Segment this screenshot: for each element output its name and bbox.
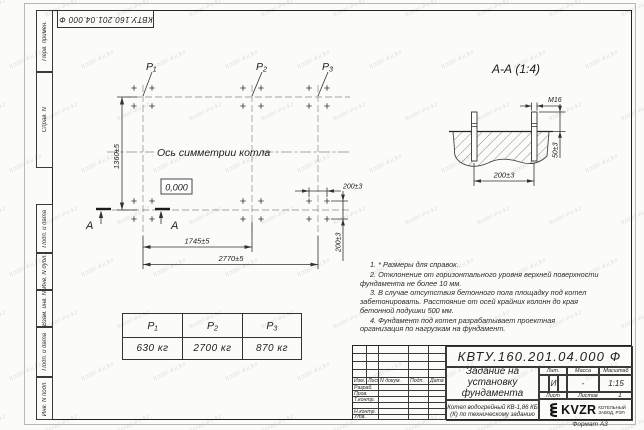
note-2: 2. Отклонение от горизонтального уровня …: [360, 271, 600, 289]
section-letter-right: А: [170, 220, 178, 232]
bolt-thread-marks: [472, 124, 538, 127]
elevation-mark-value: 0,000: [165, 183, 188, 193]
loads-header-p2: P₂: [183, 314, 243, 338]
dimension-200-vertical: 200±3: [331, 191, 348, 261]
loads-table: P₁ P₂ P₃ 630 кг 2700 кг 870 кг: [122, 313, 302, 360]
change-row-cell: [379, 346, 409, 354]
bolt-plus-mark: [324, 103, 329, 108]
thread-label: М16: [548, 97, 562, 104]
bolt-plus-mark: [324, 198, 329, 203]
bolt-plus-mark: [131, 103, 136, 108]
format-label: Формат А3: [548, 421, 632, 428]
title-block-main: КВТУ.160.201.04.000 Ф Задание на установ…: [446, 346, 633, 421]
bolt-plus-mark: [306, 85, 311, 90]
change-row-cell: [367, 362, 379, 370]
bolt-plus-mark: [306, 103, 311, 108]
bolt-plus-mark: [240, 85, 245, 90]
leader-p2: [252, 72, 262, 96]
change-row-cell: [409, 354, 429, 362]
note-3: 3. В случае отсутствия бетонного пола пл…: [360, 289, 600, 315]
change-row-cell: [367, 346, 379, 354]
bolt-plus-mark: [131, 85, 136, 90]
change-row-cell: [353, 346, 367, 354]
dimension-200-section-text: 200±3: [493, 171, 516, 180]
load-label-p2: P₂: [256, 61, 267, 73]
title-block: Изм.ЛистN докум.Подп.ДатаРазраб.Пров.Т.к…: [352, 345, 632, 420]
bolt-plus-mark: [240, 103, 245, 108]
load-label-p1: P₁: [146, 61, 157, 73]
bolt-plus-mark: [258, 216, 263, 221]
bolt-plus-mark: [324, 85, 329, 90]
anchor-bolt-right: [532, 112, 538, 161]
change-row-cell: [353, 370, 367, 378]
change-row-cell: [409, 346, 429, 354]
leader-p3: [318, 72, 328, 96]
plan-view: P₁ P₂ P₃ Ось симметрии котла 0,000 1360±…: [85, 61, 363, 269]
bolt-plus-mark: [258, 85, 263, 90]
lit-cell-1: [539, 375, 549, 392]
change-row-cell: [367, 354, 379, 362]
bolt-plus-mark: [258, 198, 263, 203]
lit-cell-3: [558, 375, 567, 392]
dimension-m16: М16: [520, 97, 562, 111]
change-row-cell: [367, 370, 379, 378]
change-row-cell: [409, 370, 429, 378]
note-4: 4. Фундамент под котел разрабатывает про…: [360, 317, 600, 335]
change-row-cell: [353, 362, 367, 370]
dimension-2770: 2770±5: [143, 236, 318, 269]
change-row-cell: [379, 354, 409, 362]
loads-value-p3: 870 кг: [243, 338, 301, 359]
change-row-cell: [409, 362, 429, 370]
loads-value-p2: 2700 кг: [183, 338, 243, 359]
change-row-cell: [379, 370, 409, 378]
load-label-p3: P₃: [322, 61, 333, 73]
dimension-1745-text: 1745±5: [185, 237, 211, 246]
change-row-cell: [429, 354, 446, 362]
sheets-label: Листов: [578, 393, 598, 399]
dimension-200v-text: 200±3: [336, 232, 343, 253]
loads-value-p1: 630 кг: [123, 338, 183, 359]
mass-header: Масса: [567, 367, 599, 375]
leader-p1: [143, 72, 152, 96]
logo-subtext-line2: ЗАВОД, РЭП: [598, 410, 626, 416]
change-row-cell: [429, 346, 446, 354]
signature-row-cell: [379, 415, 409, 420]
drawing-sheet: kotel-kv.kzkotel-kv.kzkotel-kv.kzkotel-k…: [0, 0, 644, 430]
column-header: Дата: [429, 378, 446, 385]
section-mark-a-left: А: [85, 209, 111, 232]
signature-row-cell: [409, 415, 429, 420]
scale-value: 1:15: [599, 375, 633, 392]
coil-logo-icon: [546, 402, 559, 418]
loads-header-p1: P₁: [123, 314, 183, 338]
bolt-plus-mark: [131, 198, 136, 203]
lit-header: Лит.: [539, 367, 567, 375]
dimension-200-section: 200±3: [474, 163, 534, 186]
lit-cell-2: И: [549, 375, 558, 392]
dimension-1360: 1360±5: [112, 97, 137, 210]
bolt-plus-mark: [306, 216, 311, 221]
section-letter-left: А: [85, 220, 93, 232]
bolt-plus-mark: [240, 198, 245, 203]
loads-header-p3: P₃: [243, 314, 301, 338]
sheets-value: 1: [618, 392, 622, 399]
doc-number: КВТУ.160.201.04.000 Ф: [446, 346, 633, 367]
bolt-plus-mark: [306, 198, 311, 203]
section-title: А-А (1:4): [491, 62, 540, 76]
column-header: Подп.: [409, 378, 429, 385]
product-name: Котел водогрейный КВ-1,86 КБ (К) по техн…: [446, 400, 539, 421]
sheets-cell: Листов 1: [567, 392, 633, 399]
bolt-plus-mark: [324, 216, 329, 221]
section-view: А-А (1:4) М16 50±3: [449, 62, 566, 186]
logo-subtext: КОТЕЛЬНЫЙ ЗАВОД, РЭП: [598, 405, 626, 416]
dimension-50-text: 50±3: [553, 142, 560, 158]
drawing-title: Задание на установку фундамента: [446, 367, 539, 400]
signature-row-cell: [429, 415, 446, 420]
column-header: Лист: [367, 378, 379, 385]
anchor-bolt-left: [472, 112, 478, 161]
column-header: N докум.: [379, 378, 409, 385]
change-row-cell: [429, 370, 446, 378]
change-row-cell: [429, 362, 446, 370]
technical-notes: 1. * Размеры для справок. 2. Отклонение …: [360, 261, 600, 335]
signature-row-label: Утв.: [353, 415, 379, 420]
change-row-cell: [379, 362, 409, 370]
bolt-plus-mark: [240, 216, 245, 221]
note-1: 1. * Размеры для справок.: [360, 261, 600, 270]
bolt-plus-mark: [149, 103, 154, 108]
sheet-label: Лист: [539, 392, 567, 399]
scale-header: Масштаб: [599, 367, 633, 375]
bolt-plus-mark: [149, 216, 154, 221]
dimension-1360-text: 1360±5: [112, 143, 121, 169]
company-logo-cell: KVZR КОТЕЛЬНЫЙ ЗАВОД, РЭП: [539, 399, 633, 421]
bolt-plus-mark: [149, 198, 154, 203]
bolt-plus-mark: [131, 216, 136, 221]
title-block-signatures: Изм.ЛистN докум.Подп.ДатаРазраб.Пров.Т.к…: [353, 346, 446, 421]
change-row-cell: [353, 354, 367, 362]
section-mark-a-right: А: [155, 209, 178, 232]
symmetry-axis-label: Ось симметрии котла: [157, 147, 270, 159]
dimension-200h-text: 200±3: [342, 184, 363, 191]
mass-value: -: [567, 375, 599, 392]
dimension-200-horizontal: 200±3: [295, 184, 363, 198]
column-header: Изм.: [353, 378, 367, 385]
bolt-plus-mark: [258, 103, 263, 108]
bolt-plus-mark: [149, 85, 154, 90]
dimension-1745: 1745±5: [143, 222, 252, 252]
logo-text: KVZR: [561, 403, 596, 417]
dimension-2770-text: 2770±5: [218, 254, 245, 263]
